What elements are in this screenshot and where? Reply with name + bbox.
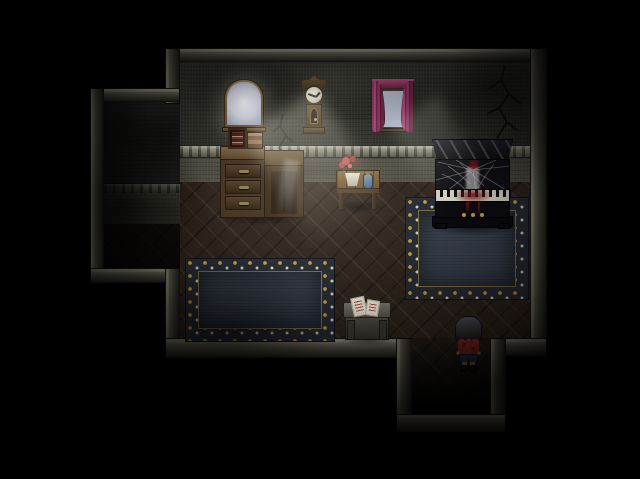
border-alcove-left bbox=[90, 88, 104, 284]
alcove-shade bbox=[104, 102, 180, 268]
alcove bbox=[104, 102, 180, 268]
border-top bbox=[165, 48, 548, 62]
note-2 bbox=[365, 299, 380, 317]
wall-crack bbox=[484, 64, 524, 142]
passage-shade bbox=[412, 338, 490, 414]
room-glow bbox=[190, 120, 450, 290]
border-passage-bottom bbox=[396, 414, 506, 432]
border-right bbox=[530, 48, 547, 356]
storage-box[interactable] bbox=[343, 300, 391, 342]
arched-window-panes bbox=[227, 82, 261, 125]
box-body bbox=[345, 317, 389, 340]
game-viewport[interactable] bbox=[0, 0, 640, 479]
